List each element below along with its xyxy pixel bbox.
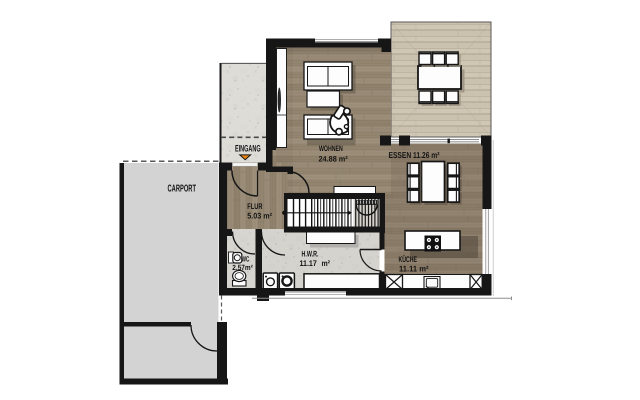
- svg-text:KÜCHE: KÜCHE: [399, 255, 418, 264]
- svg-text:CARPORT: CARPORT: [168, 183, 197, 194]
- svg-text:EINGANG: EINGANG: [235, 142, 261, 153]
- svg-text:11.11 m²: 11.11 m²: [399, 265, 429, 274]
- svg-text:H.W.R.: H.W.R.: [302, 250, 319, 259]
- svg-text:11.17: 11.17: [300, 259, 318, 268]
- svg-text:5.03 m²: 5.03 m²: [247, 212, 272, 221]
- svg-text:FLUR: FLUR: [247, 202, 262, 211]
- svg-text:m²: m²: [322, 259, 331, 268]
- svg-text:WOHNEN: WOHNEN: [319, 144, 343, 153]
- svg-text:ESSEN 11.26 m²: ESSEN 11.26 m²: [389, 150, 440, 160]
- svg-text:2.57m²: 2.57m²: [232, 263, 253, 272]
- svg-text:24.88 m²: 24.88 m²: [319, 155, 349, 164]
